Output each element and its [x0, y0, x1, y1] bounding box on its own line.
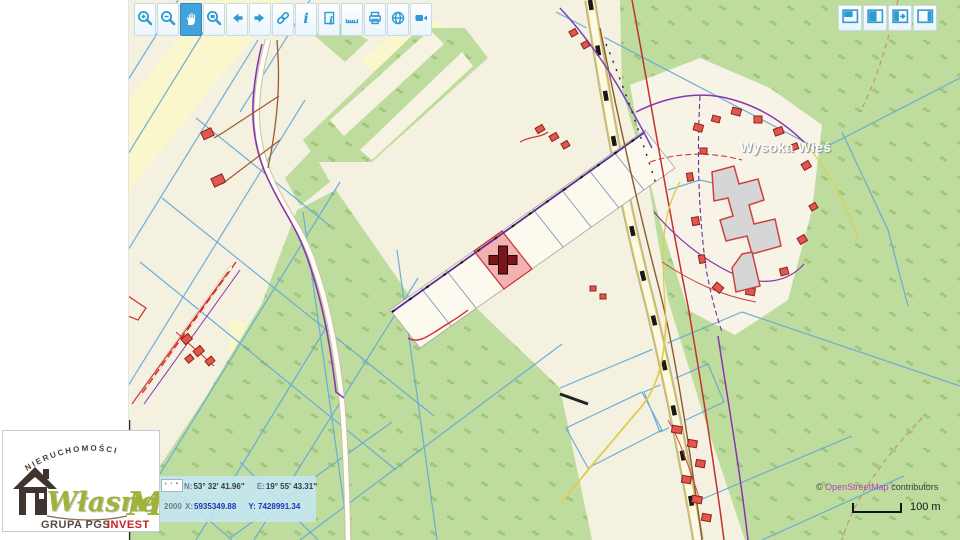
place-label-wysoka-wies: Wysoka Wieś	[740, 140, 831, 155]
svg-text:i: i	[329, 15, 333, 27]
page-with-i-icon: i	[321, 10, 337, 29]
coord-e-value: 19° 55' 43.31"	[266, 482, 317, 491]
previous-view-button[interactable]	[226, 3, 248, 36]
coord-system: 2000	[164, 502, 182, 511]
coord-format-button[interactable]: ° ' "	[161, 479, 183, 492]
map-attribution: © OpenStreetMap contributors	[816, 482, 938, 492]
coordinates-row-projected: 2000 X:5935349.88 Y: 7428991.34	[164, 502, 300, 511]
coordinates-row-geographic: N:53° 32' 41.96" E:19° 55' 43.31"	[184, 482, 317, 491]
scale-bar: 100 m	[852, 502, 941, 513]
print-button[interactable]	[364, 3, 386, 36]
panel-expand-button[interactable]	[888, 5, 912, 31]
panel-right-filled-icon	[917, 9, 934, 27]
magnifier-minus-icon	[160, 10, 176, 29]
panel-left-filled-icon	[867, 9, 884, 27]
chain-icon	[275, 10, 291, 29]
hand-icon	[183, 10, 199, 29]
info-button[interactable]: i	[295, 3, 317, 36]
measure-button[interactable]	[341, 3, 363, 36]
logo-initial: M	[126, 484, 159, 523]
italic-i-icon: i	[298, 10, 314, 29]
zoom-out-button[interactable]	[157, 3, 179, 36]
camera-icon	[413, 10, 429, 29]
coord-n-value: 53° 32' 41.96"	[193, 482, 244, 491]
coord-y-label: Y:	[248, 502, 255, 511]
coord-n-label: N:	[184, 482, 192, 491]
panel-top-left-filled-icon	[842, 9, 859, 27]
svg-text:NIERUCHOMOŚCI: NIERUCHOMOŚCI	[23, 444, 119, 473]
magnifier-box-icon	[206, 10, 222, 29]
svg-text:i: i	[303, 11, 308, 26]
pan-button[interactable]	[180, 3, 202, 36]
coord-x-label: X:	[185, 502, 193, 511]
coord-y-value: 7428991.34	[258, 502, 300, 511]
panel-layout-top-button[interactable]	[838, 5, 862, 31]
arrow-right-icon	[252, 10, 268, 29]
link-button[interactable]	[272, 3, 294, 36]
arrow-left-icon	[229, 10, 245, 29]
logo-group-text: GRUPA PGS	[41, 519, 110, 531]
panel-arrow-right-icon	[892, 9, 909, 27]
openstreetmap-link[interactable]: OpenStreetMap	[825, 482, 889, 492]
map-toolbar: i i	[134, 3, 432, 36]
gis-map-viewer: Wysoka Wieś i i NIERUCHOMOŚCI	[0, 0, 960, 540]
ruler-icon	[344, 10, 360, 29]
logo-brand-text: INVEST	[107, 519, 150, 531]
printer-icon	[367, 10, 383, 29]
company-logo: NIERUCHOMOŚCI Własne Własne M GRUPA PGS …	[2, 430, 160, 532]
panel-layout-right-button[interactable]	[913, 5, 937, 31]
attribution-suffix: contributors	[891, 482, 938, 492]
copyright-symbol: ©	[816, 482, 823, 492]
zoom-in-button[interactable]	[134, 3, 156, 36]
magnifier-plus-icon	[137, 10, 153, 29]
panel-toggle-bar	[838, 5, 937, 31]
zoom-window-button[interactable]	[203, 3, 225, 36]
scale-label: 100 m	[910, 502, 941, 513]
panel-layout-left-button[interactable]	[863, 5, 887, 31]
logo-arc-text: NIERUCHOMOŚCI	[23, 444, 119, 473]
scale-bracket	[852, 503, 902, 513]
coordinates-bar: ° ' " N:53° 32' 41.96" E:19° 55' 43.31" …	[158, 476, 316, 522]
next-view-button[interactable]	[249, 3, 271, 36]
globe-icon	[390, 10, 406, 29]
coord-x-value: 5935349.88	[194, 502, 236, 511]
globe-button[interactable]	[387, 3, 409, 36]
video-button[interactable]	[410, 3, 432, 36]
page-info-button[interactable]: i	[318, 3, 340, 36]
coord-e-label: E:	[257, 482, 265, 491]
